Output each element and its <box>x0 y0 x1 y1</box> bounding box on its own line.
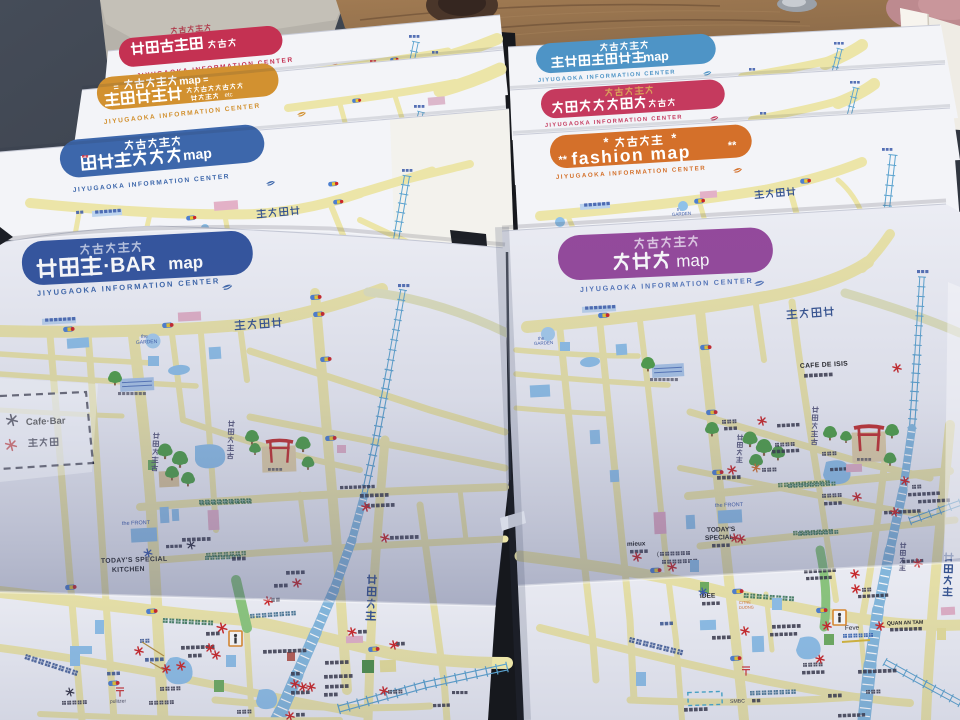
svg-text:**: ** <box>728 140 738 153</box>
svg-text:map: map <box>182 145 212 163</box>
svg-text:**: ** <box>558 154 568 167</box>
svg-text:etc: etc <box>224 92 233 99</box>
svg-text:map: map <box>643 49 670 65</box>
